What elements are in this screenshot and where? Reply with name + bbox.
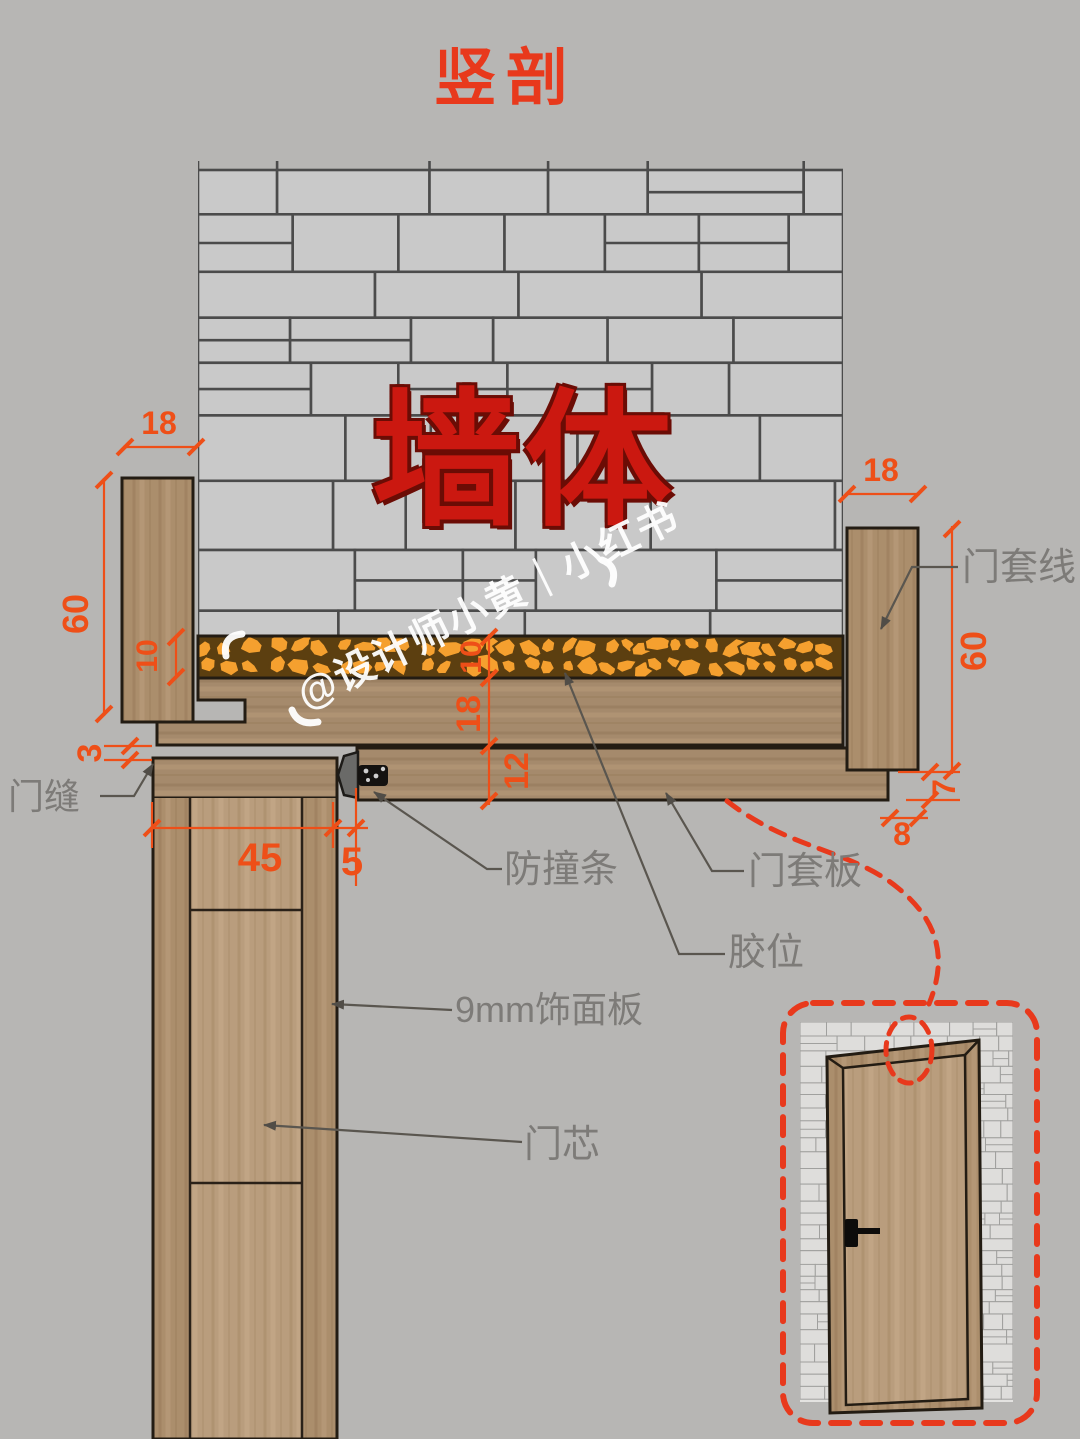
- inset-door-handle-stem: [858, 1228, 880, 1234]
- dim-mid-12: 12: [500, 749, 534, 793]
- dim-door-45: 45: [225, 838, 295, 878]
- vertical-section-diagram: 竖剖 墙体 @设计师小黄｜小红书 18 60 10 3 45 5 10 18 1…: [0, 0, 1080, 1439]
- lower-casing-board: [357, 748, 888, 800]
- label-bumper: 防撞条: [504, 851, 618, 889]
- dim-right-8: 8: [886, 818, 918, 850]
- door-veneer-left: [153, 798, 190, 1439]
- leader-veneer: [332, 1004, 452, 1010]
- dim-mid-10: 10: [457, 635, 487, 679]
- section-drawing-canvas: [0, 0, 1080, 1439]
- dim-right-18: 18: [858, 454, 904, 486]
- door-core: [190, 798, 302, 1439]
- door-top-rail: [153, 758, 337, 798]
- label-casing-line: 门套线: [962, 549, 1076, 587]
- dim-left-60: 60: [58, 586, 94, 642]
- seal-dot: [374, 774, 379, 779]
- label-door-core: 门芯: [524, 1126, 600, 1164]
- leader-bumper: [374, 792, 502, 869]
- seal-dot: [381, 767, 385, 771]
- label-casing-board: 门套板: [748, 853, 862, 891]
- page-title: 竖剖: [434, 48, 578, 110]
- label-glue: 胶位: [728, 934, 804, 972]
- dim-right-7: 7: [928, 766, 960, 810]
- inset-door-handle: [845, 1219, 858, 1247]
- dim-mid-18: 18: [452, 692, 486, 736]
- glue-strip: [191, 630, 843, 683]
- door-overview-inset: [783, 1003, 1037, 1423]
- dim-left-10: 10: [133, 634, 163, 678]
- right-architrave: [847, 528, 918, 770]
- dim-left-18: 18: [134, 407, 184, 439]
- dim-seal-5: 5: [332, 842, 372, 882]
- left-architrave: [122, 478, 193, 722]
- door-veneer-right: [302, 798, 337, 1439]
- dim-left-3: 3: [73, 733, 107, 773]
- seal-dot: [364, 769, 369, 774]
- leader-door-gap: [100, 764, 153, 796]
- dim-right-60: 60: [956, 623, 992, 679]
- head-casing-board: [157, 678, 843, 745]
- seal-dot: [366, 778, 370, 782]
- label-veneer: 9mm饰面板: [455, 992, 643, 1028]
- label-door-gap: 门缝: [8, 779, 80, 815]
